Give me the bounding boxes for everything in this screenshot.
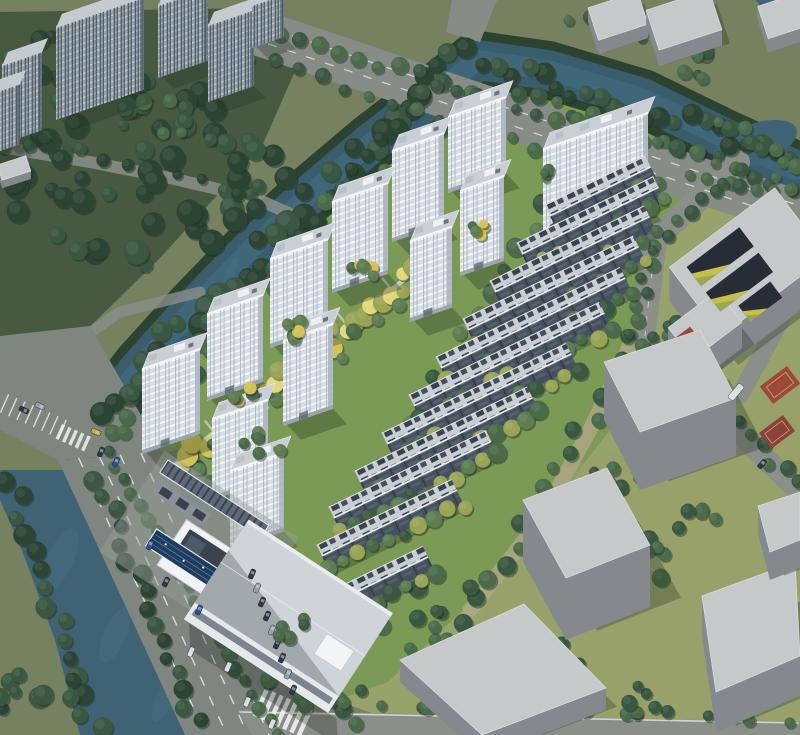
rendering-canvas: [0, 0, 800, 735]
architectural-aerial-rendering: [0, 0, 800, 735]
